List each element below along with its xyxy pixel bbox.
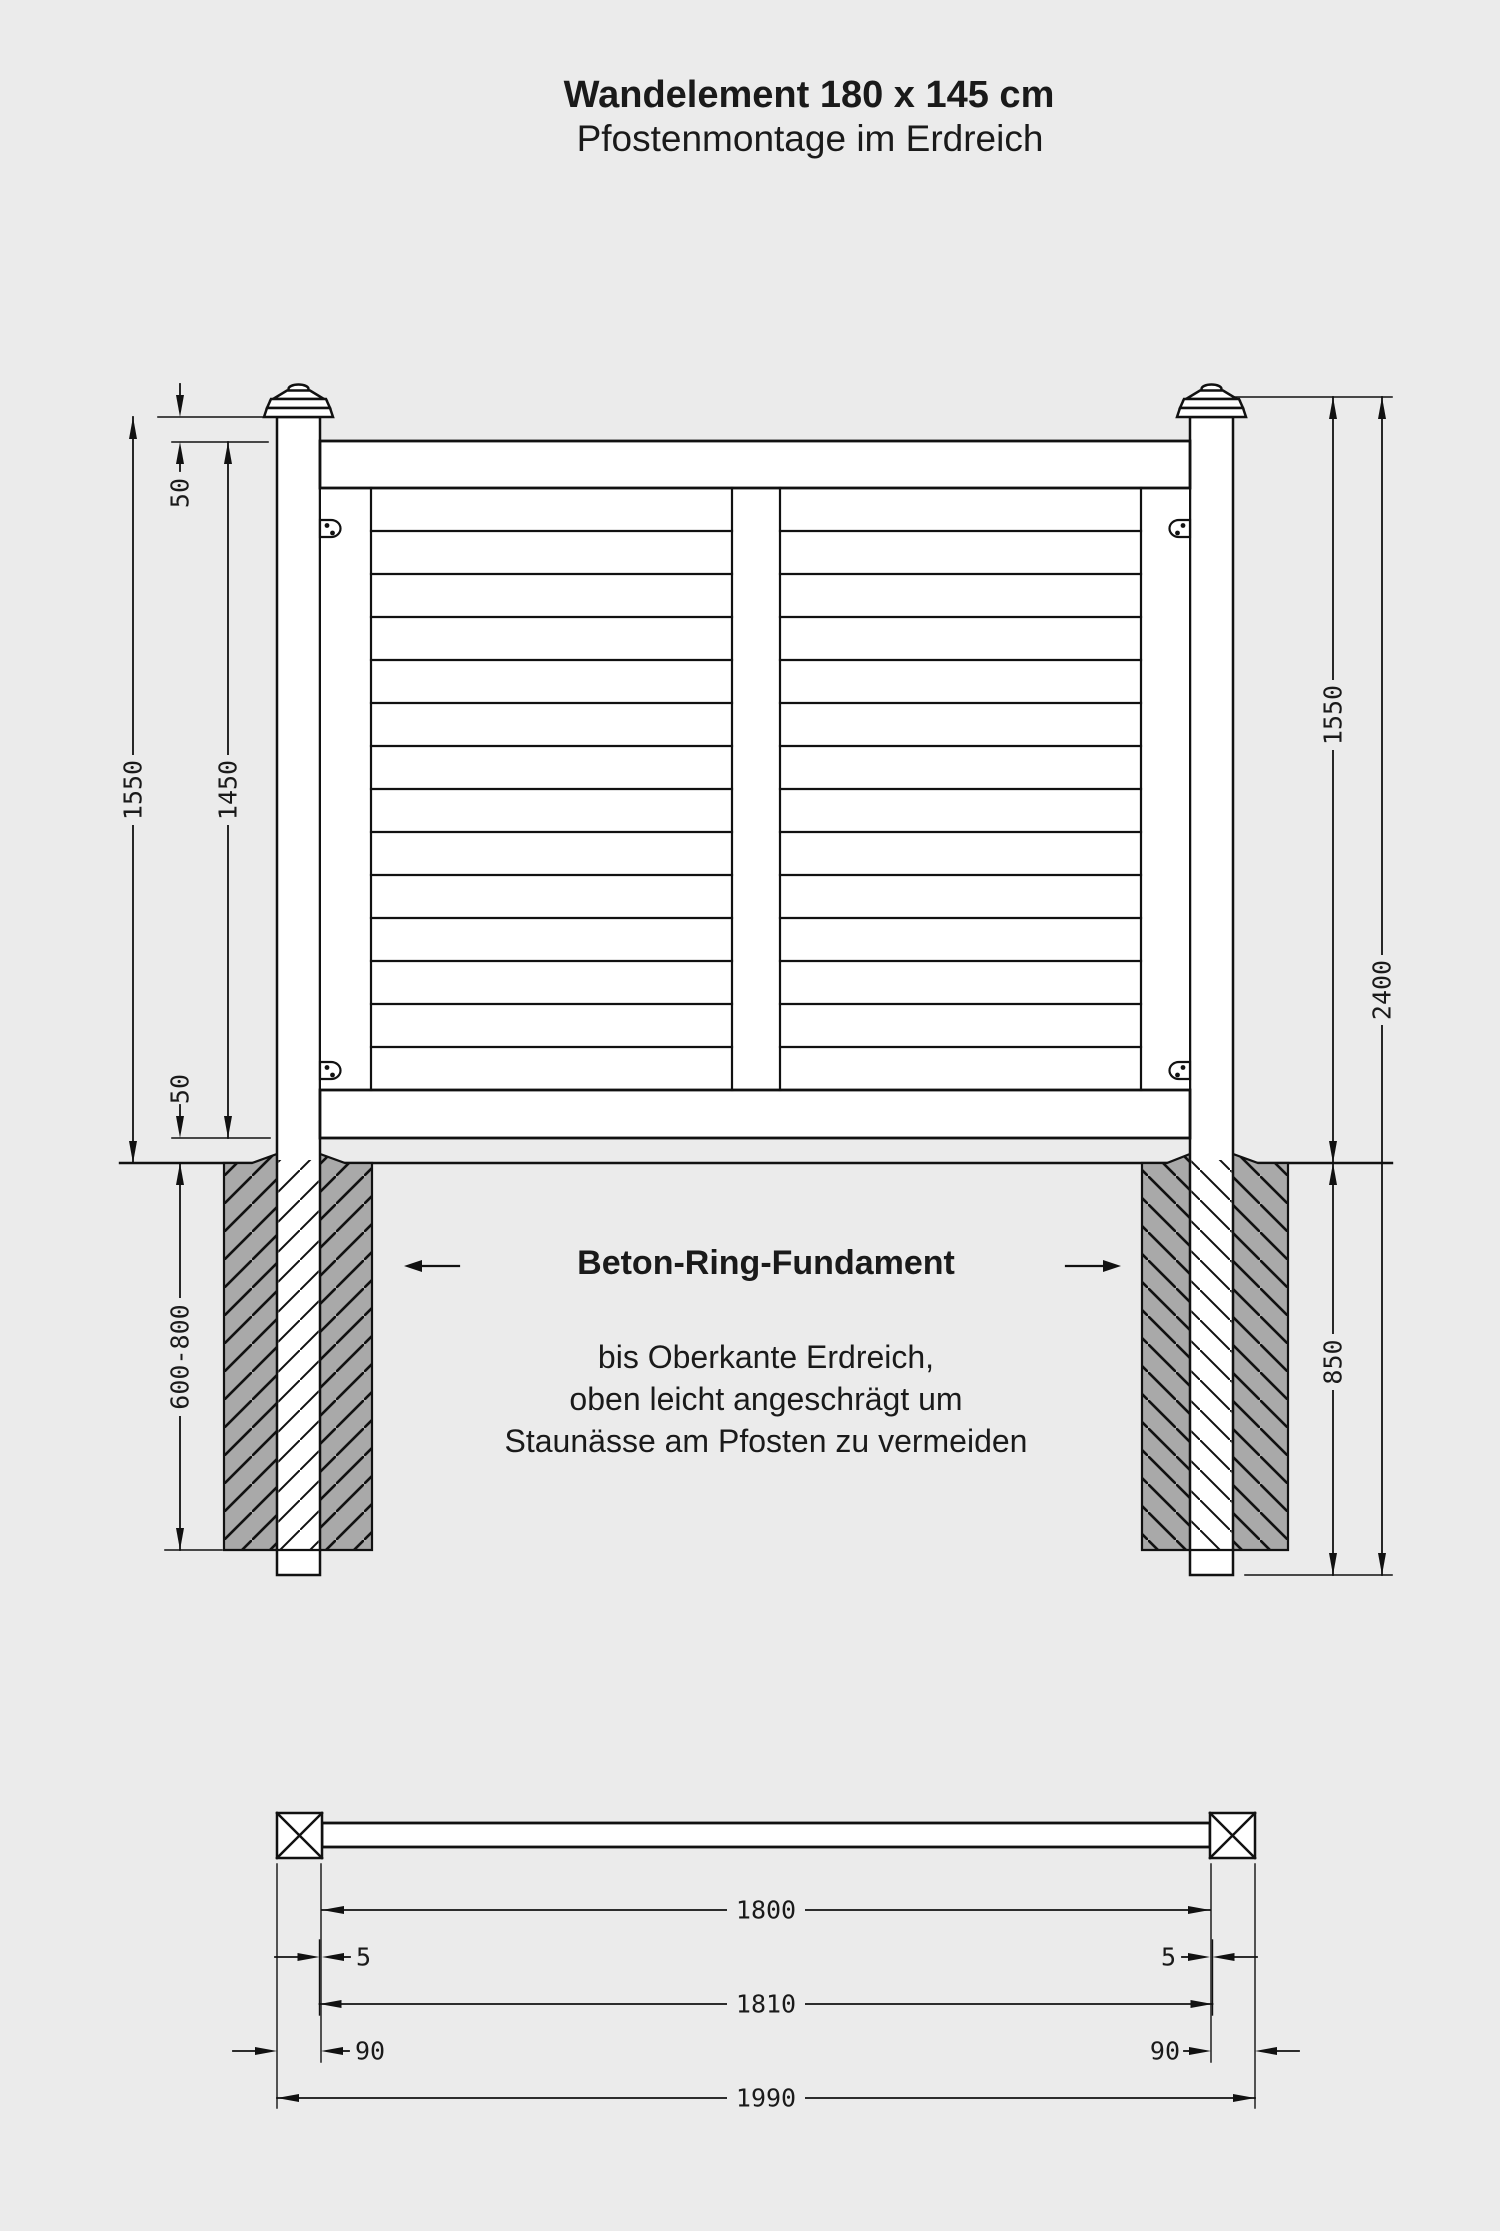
left-post [277,417,320,1575]
left-post-cap [264,385,333,418]
svg-text:1990: 1990 [736,2084,796,2113]
svg-text:1450: 1450 [214,760,243,820]
dim-tenons: 5 5 [275,1943,1257,1972]
svg-text:5: 5 [356,1943,371,1972]
svg-text:50: 50 [166,1074,195,1104]
technical-drawing-page: Wandelement 180 x 145 cm Pfostenmontage … [0,0,1500,2231]
bracket-right-upper [1170,520,1191,537]
dim-above-ground-right: 1550 [1319,397,1348,1163]
plan-left-post [277,1813,322,1858]
dim-clear-span: 1800 [322,1896,1210,1925]
dim-element-length: 1810 [320,1990,1213,2019]
svg-text:1800: 1800 [736,1896,796,1925]
bracket-left-upper [320,520,341,537]
right-post [1190,417,1233,1575]
fence-drawing: 1550 1450 50 50 [0,0,1500,2231]
dim-overall-length: 1990 [277,2084,1255,2113]
plan-wall-element [322,1823,1210,1847]
svg-text:1810: 1810 [736,1990,796,2019]
wall-element-panel [320,441,1190,1138]
svg-text:1550: 1550 [1319,685,1348,745]
plan-view: 1800 5 5 1810 [233,1813,1299,2113]
svg-text:5: 5 [1161,1943,1176,1972]
dim-offset-top: 50 [166,384,195,508]
plan-right-post [1210,1813,1255,1858]
bracket-left-lower [320,1062,341,1079]
dim-post-total: 2400 [1368,397,1397,1575]
dim-element-height: 1450 [214,442,243,1138]
dim-foundation-depth: 600-800 [166,1163,195,1550]
svg-text:1550: 1550 [119,760,148,820]
dim-offset-bottom: 50 [166,1074,195,1138]
svg-text:90: 90 [355,2037,385,2066]
bracket-right-lower [1170,1062,1191,1079]
elevation-view: 1550 1450 50 50 [119,384,1397,1575]
svg-text:850: 850 [1319,1339,1348,1384]
svg-text:600-800: 600-800 [166,1304,195,1409]
dim-post-widths: 90 90 [233,2037,1299,2066]
bottom-rail [320,1090,1190,1138]
right-post-cap [1177,385,1246,418]
top-rail [320,441,1190,488]
svg-text:90: 90 [1150,2037,1180,2066]
dim-above-ground-left: 1550 [119,417,148,1163]
svg-text:2400: 2400 [1368,960,1397,1020]
svg-text:50: 50 [166,478,195,508]
note-arrows [404,1260,1121,1272]
dim-post-buried: 850 [1319,1163,1348,1575]
